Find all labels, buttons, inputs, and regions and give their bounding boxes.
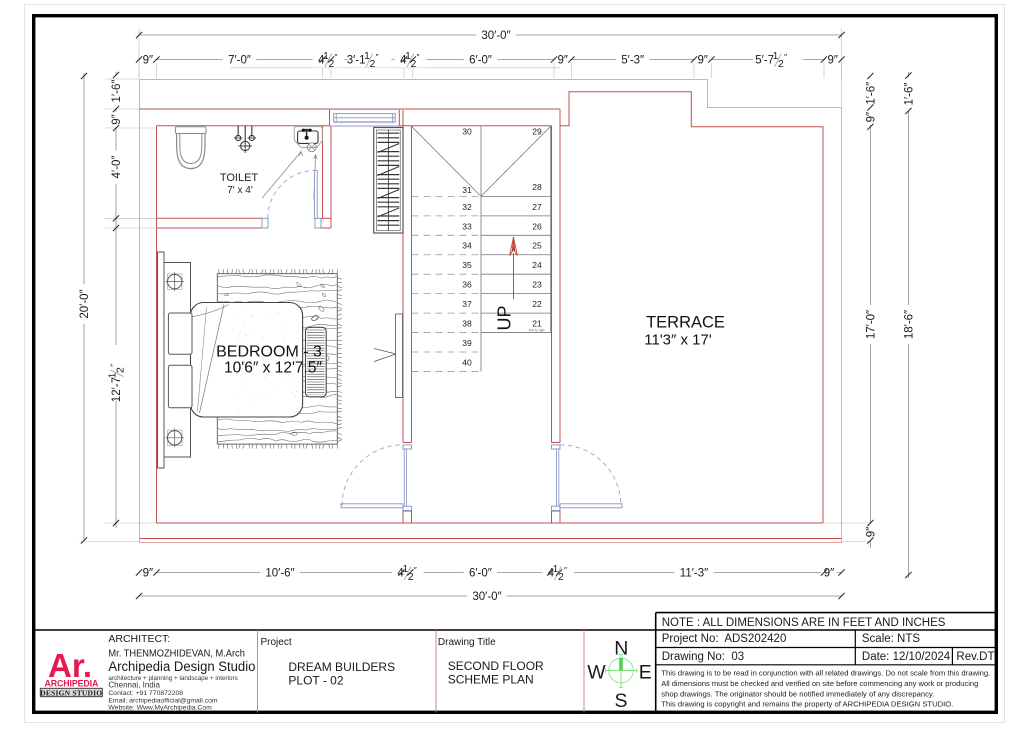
svg-text:Scale: NTS: Scale: NTS [862,633,920,645]
svg-text:9″: 9″ [697,55,707,67]
svg-text:10'6″ x 12'7.5″: 10'6″ x 12'7.5″ [224,360,322,377]
svg-text:Date: 12/10/2024: Date: 12/10/2024 [862,651,951,663]
svg-text:23: 23 [532,280,542,290]
svg-text:28: 28 [532,182,542,192]
svg-text:27: 27 [532,202,542,212]
svg-text:Archipedia Design Studio: Archipedia Design Studio [108,659,255,674]
svg-text:1′-6″: 1′-6″ [903,83,915,106]
svg-text:BEDROOM - 3: BEDROOM - 3 [216,344,322,361]
svg-text:11′-3″: 11′-3″ [680,568,708,580]
svg-text:FF to SF: FF to SF [529,328,545,333]
svg-text:Mr. THENMOZHIDEVAN, M.Arch: Mr. THENMOZHIDEVAN, M.Arch [108,648,245,659]
svg-text:7' x 4': 7' x 4' [227,185,253,196]
svg-text:ARCHITECT:: ARCHITECT: [108,633,170,645]
svg-text:9″: 9″ [865,112,877,122]
svg-text:26: 26 [532,221,542,231]
svg-text:1′-6″: 1′-6″ [111,80,123,103]
svg-text:Contact: +91 770872208: Contact: +91 770872208 [108,690,183,697]
svg-text:Project: Project [261,637,292,648]
svg-text:″: ″ [564,565,567,575]
svg-text:E: E [639,661,652,683]
svg-text:9″: 9″ [111,114,123,124]
svg-text:TOILET: TOILET [220,172,259,184]
svg-text:3′-1: 3′-1 [347,55,366,67]
svg-text:″: ″ [414,565,417,575]
svg-text:33: 33 [462,221,472,231]
svg-text:″: ″ [335,52,338,62]
svg-text:″: ″ [784,52,787,62]
svg-text:Email: archipediaofficial@gmai: Email: archipediaofficial@gmail.com [108,698,217,705]
svg-text:9″: 9″ [865,527,877,537]
svg-text:1′-6″: 1′-6″ [865,82,877,105]
svg-text:9″: 9″ [557,55,567,67]
svg-text:25: 25 [532,241,542,251]
svg-text:24: 24 [532,260,542,270]
svg-text:12′-7: 12′-7 [111,377,123,402]
svg-text:9″: 9″ [143,568,153,580]
svg-text:SCHEME PLAN: SCHEME PLAN [448,673,534,687]
svg-text:39: 39 [462,338,472,348]
svg-text:PLOT - 02: PLOT - 02 [288,674,343,688]
svg-text:4′-0″: 4′-0″ [111,156,123,179]
svg-text:UP: UP [495,305,515,330]
svg-text:30′-0″: 30′-0″ [481,30,510,42]
svg-text:Website: Www.MyArchipedia.Com: Website: Www.MyArchipedia.Com [108,705,212,712]
svg-text:″: ″ [417,52,420,62]
svg-text:This drawing is copyright and: This drawing is copyright and remains th… [661,699,953,708]
svg-text:″: ″ [109,364,119,367]
svg-text:9″: 9″ [824,568,834,580]
svg-text:DESIGN STUDIO: DESIGN STUDIO [40,688,102,697]
svg-text:Rev.DT: Rev.DT [956,651,994,663]
svg-text:SECOND FLOOR: SECOND FLOOR [448,659,544,673]
svg-text:This drawing is to be read in: This drawing is to be read in conjunctio… [661,669,990,678]
svg-text:NOTE : ALL DIMENSIONS ARE IN F: NOTE : ALL DIMENSIONS ARE IN FEET AND IN… [662,617,946,629]
svg-text:20′-0″: 20′-0″ [79,289,91,318]
svg-text:35: 35 [462,260,472,270]
svg-text:Chennai, India: Chennai, India [108,680,160,689]
svg-text:DREAM BUILDERS: DREAM BUILDERS [288,660,395,674]
svg-text:38: 38 [462,319,472,329]
svg-text:6′-0″: 6′-0″ [469,568,492,580]
svg-text:5′-3″: 5′-3″ [621,55,644,67]
svg-text:N: N [614,638,628,660]
svg-text:32: 32 [462,202,472,212]
svg-text:All dimensions must be checked: All dimensions must be checked and verif… [661,679,978,688]
svg-text:10′-6″: 10′-6″ [265,568,294,580]
svg-text:TERRACE: TERRACE [646,314,725,332]
svg-text:11'3″ x 17': 11'3″ x 17' [644,332,712,349]
svg-text:″: ″ [376,52,379,62]
svg-text:36: 36 [462,280,472,290]
svg-text:6′-0″: 6′-0″ [469,55,492,67]
svg-text:ARCHIPEDIA: ARCHIPEDIA [45,678,99,688]
svg-text:Drawing Title: Drawing Title [438,637,496,648]
svg-text:17′-0″: 17′-0″ [865,310,877,339]
svg-text:9″: 9″ [143,55,153,67]
svg-text:29: 29 [532,127,542,137]
svg-text:Project No: ADS202420: Project No: ADS202420 [662,633,787,645]
svg-text:34: 34 [462,241,472,251]
svg-text:40: 40 [462,357,472,367]
svg-text:30′-0″: 30′-0″ [472,591,501,603]
svg-text:30: 30 [462,127,472,137]
svg-text:7′-0″: 7′-0″ [228,55,251,67]
svg-text:37: 37 [462,299,472,309]
svg-text:shop drawings. The originator: shop drawings. The originator should be … [661,689,934,698]
svg-text:Drawing No: 03: Drawing No: 03 [662,651,744,663]
svg-text:31: 31 [462,185,472,195]
svg-text:9″: 9″ [827,55,837,67]
svg-text:18′-6″: 18′-6″ [903,310,915,339]
svg-text:W: W [587,661,606,683]
svg-text:22: 22 [532,299,542,309]
svg-text:5′-7: 5′-7 [755,55,774,67]
svg-text:S: S [614,690,627,712]
